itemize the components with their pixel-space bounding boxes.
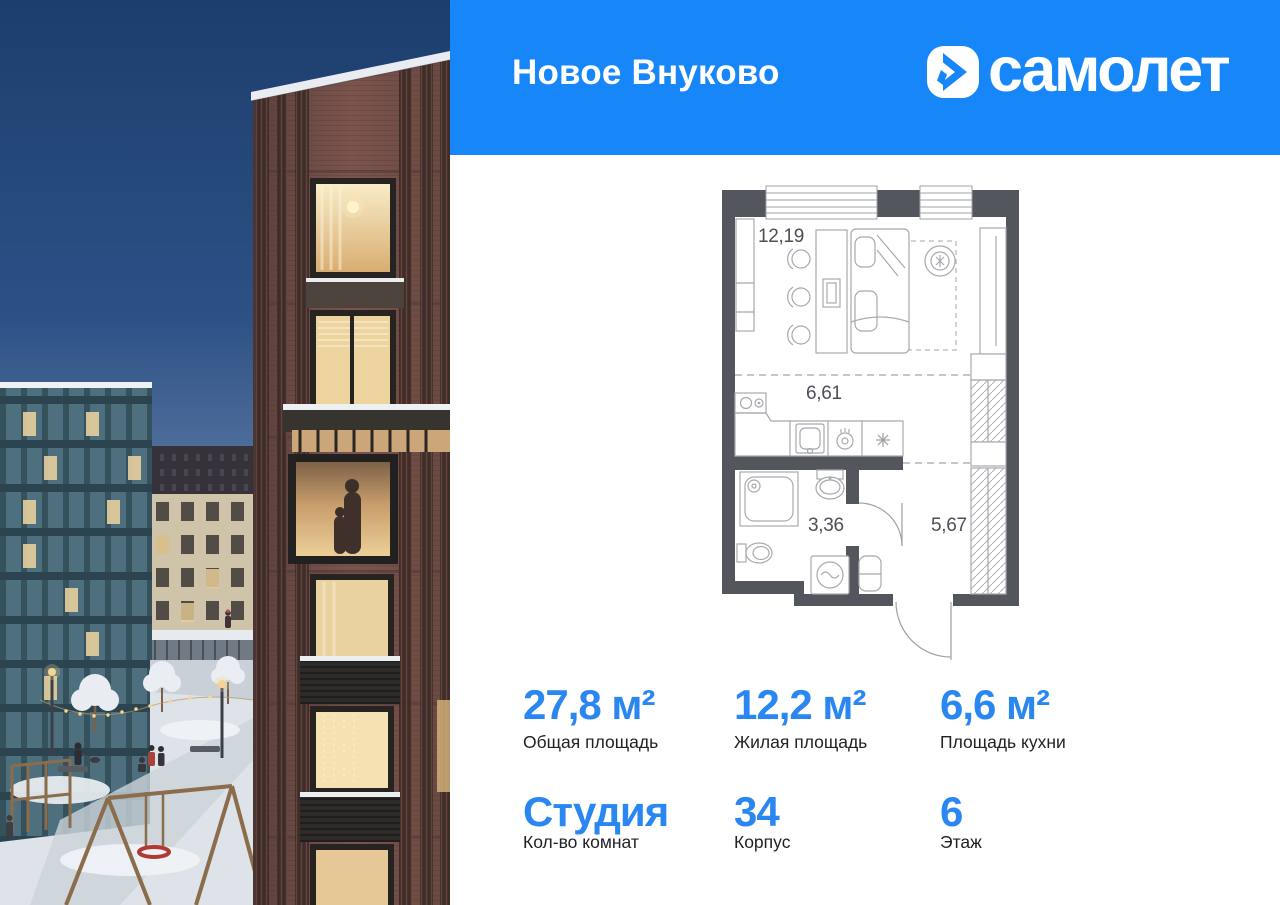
lit-window-upper <box>310 178 396 278</box>
bed <box>851 229 909 353</box>
washbasin <box>816 470 844 499</box>
photo-scene <box>0 0 450 905</box>
bathroom-door <box>859 503 902 546</box>
lit-window-fourth <box>310 706 394 794</box>
project-title: Новое Внуково <box>512 53 780 93</box>
apartment-card: Новое Внуково самолет <box>0 0 1280 905</box>
shower <box>740 472 798 526</box>
lit-window-third <box>310 574 394 666</box>
toilet <box>737 543 772 563</box>
lit-window-fifth <box>310 844 394 905</box>
plan-windows <box>766 186 972 219</box>
header-bar: Новое Внуково самолет <box>450 0 1280 155</box>
floor-label: Этаж <box>940 833 982 852</box>
main-brick-tower <box>251 51 450 905</box>
background-buildings <box>148 446 260 662</box>
water-heater <box>837 428 853 449</box>
floor-value: 6 <box>940 791 962 833</box>
room-area-label-hallway: 5,67 <box>931 516 967 535</box>
total-area-value: 27,8 м² <box>523 684 654 726</box>
living-area-label: Жилая площадь <box>734 733 867 752</box>
room-area-label-kitchen: 6,61 <box>806 384 842 403</box>
room-area-label-living: 12,19 <box>758 227 804 246</box>
total-area-label: Общая площадь <box>523 733 658 752</box>
washing-machine <box>811 556 849 594</box>
lit-window-second <box>310 310 396 412</box>
kitchen-area-value: 6,6 м² <box>940 684 1049 726</box>
rooms-count-value: Студия <box>523 791 668 833</box>
living-area-value: 12,2 м² <box>734 684 865 726</box>
floor-plan: 12,19 6,61 3,36 5,67 <box>714 180 1024 672</box>
residents-window <box>288 454 398 564</box>
project-photo <box>0 0 450 905</box>
wardrobe <box>980 228 1006 354</box>
floor-plan-drawing <box>714 180 1024 672</box>
stove <box>735 393 766 413</box>
shoe-bench <box>859 556 881 591</box>
balcony-planter-2 <box>300 792 400 842</box>
building-value: 34 <box>734 791 779 833</box>
rooms-count-label: Кол-во комнат <box>523 833 639 852</box>
entrance-canopy <box>283 404 450 452</box>
kitchen-sink <box>796 424 824 454</box>
brand-logo: самолет <box>927 46 1228 98</box>
teal-tower <box>0 382 152 846</box>
tall-cabinet <box>736 219 754 331</box>
brand-name: самолет <box>988 45 1228 95</box>
details-panel: Новое Внуково самолет <box>450 0 1280 905</box>
hallway-fixtures <box>859 354 1006 660</box>
balcony-planter-1 <box>300 656 400 704</box>
tv <box>823 279 840 307</box>
room-area-label-bathroom: 3,36 <box>808 516 844 535</box>
samolet-logo-icon <box>927 46 979 98</box>
entrance-door <box>896 602 951 660</box>
kitchen-area-label: Площадь кухни <box>940 733 1066 752</box>
closet-shelves <box>971 354 1006 594</box>
round-table-with-plant <box>925 246 955 276</box>
fridge-snowflake-icon <box>876 433 890 447</box>
bar-stools <box>788 249 810 345</box>
building-label: Корпус <box>734 833 790 852</box>
